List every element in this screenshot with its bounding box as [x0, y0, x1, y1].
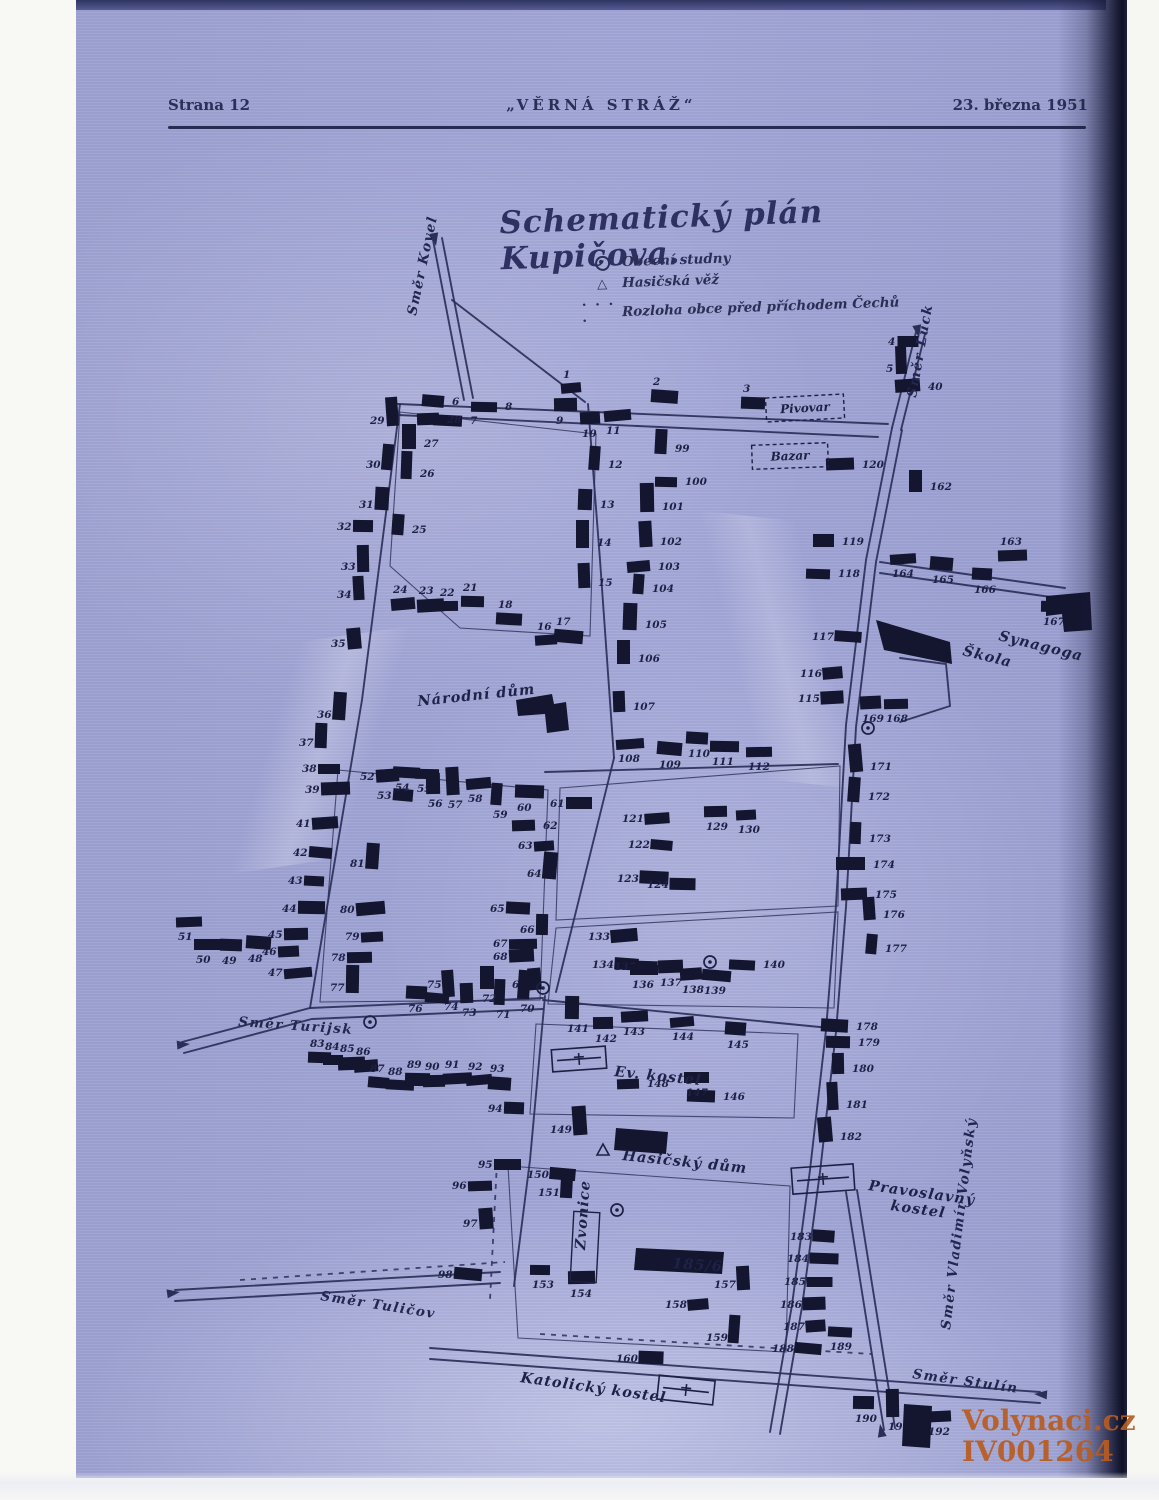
building-number: 149 — [550, 1124, 573, 1136]
scanned-newspaper-page: Strana 12 „VĚRNÁ STRÁŽ“ 23. března 1951 … — [0, 0, 1159, 1500]
block-outline — [556, 766, 840, 920]
building — [346, 627, 362, 649]
building — [828, 1326, 852, 1337]
building — [638, 1351, 663, 1365]
building-number: 43 — [288, 875, 303, 887]
building — [365, 843, 380, 870]
building — [478, 1208, 493, 1230]
building-number: 112 — [748, 761, 770, 773]
building — [865, 934, 878, 955]
building-number: 159 — [706, 1332, 729, 1344]
building — [702, 969, 732, 982]
building-number: 36 — [317, 709, 332, 721]
building-number: 157 — [714, 1279, 737, 1291]
building-number: 1 — [563, 369, 570, 381]
building-number: 115 — [798, 693, 820, 705]
building-number: 75 — [427, 979, 442, 991]
building-number: 38 — [302, 763, 317, 775]
building — [654, 429, 667, 455]
building-number: 163 — [1000, 536, 1022, 548]
building — [426, 773, 440, 794]
building — [686, 731, 709, 744]
building-number: 27 — [423, 438, 439, 450]
watermark-site: Volynaci.cz — [962, 1405, 1136, 1436]
building-number: 22 — [439, 587, 455, 599]
building-number: 104 — [652, 583, 674, 595]
building-number: 29 — [369, 415, 385, 427]
building — [623, 603, 638, 630]
building — [347, 952, 372, 963]
building-number: 187 — [783, 1321, 806, 1333]
building-number: 79 — [345, 931, 360, 943]
named-place-label: Pivovar — [779, 400, 832, 417]
building-number: 108 — [618, 753, 641, 765]
building-number: 181 — [846, 1099, 868, 1111]
building-number: 189 — [830, 1341, 853, 1353]
building-number: 26 — [419, 468, 435, 480]
building — [461, 596, 484, 607]
building — [704, 806, 727, 817]
building-number: 10 — [582, 428, 597, 440]
building — [361, 931, 383, 942]
building-number: 68 — [493, 951, 508, 963]
building-number: 7 — [470, 415, 478, 427]
building-number: 35 — [331, 638, 346, 650]
building-number: 110 — [688, 748, 711, 760]
building-number: 174 — [873, 859, 895, 871]
building — [669, 878, 695, 890]
building-number: 151 — [538, 1187, 560, 1199]
building-number: 70 — [520, 1003, 535, 1015]
building-number: 8 — [505, 401, 513, 413]
building-number: 66 — [520, 924, 535, 936]
building-number: 76 — [408, 1003, 423, 1015]
building — [670, 1016, 695, 1028]
building-number: 150 — [527, 1169, 550, 1181]
building-number: 122 — [628, 839, 650, 851]
building — [284, 967, 313, 979]
building-number: 24 — [392, 584, 408, 596]
building — [578, 489, 593, 510]
building — [909, 470, 922, 492]
building — [385, 397, 399, 427]
building-number: 188 — [772, 1343, 795, 1355]
map-canvas: 1234540678910111213141516171821222324252… — [0, 0, 1159, 1500]
building-number: 136 — [632, 979, 655, 991]
building — [536, 914, 548, 935]
building-number: 190 — [855, 1413, 878, 1425]
building-number: 25 — [411, 524, 427, 536]
building-number: 96 — [452, 1180, 467, 1192]
well-icon-dot — [708, 960, 712, 964]
building — [593, 1017, 613, 1029]
building — [805, 1319, 826, 1332]
building-number: 107 — [633, 701, 656, 713]
building — [312, 816, 339, 830]
building — [454, 1267, 483, 1281]
building-number: 6 — [452, 396, 460, 408]
road — [846, 1192, 884, 1430]
building — [441, 970, 455, 998]
building-number: 89 — [407, 1059, 422, 1071]
building — [820, 690, 844, 704]
building — [741, 397, 765, 410]
building-number: 64 — [527, 868, 542, 880]
building-number: 184 — [787, 1253, 809, 1265]
building — [655, 477, 677, 487]
building-number: 142 — [595, 1033, 617, 1045]
landmark-building — [516, 694, 569, 733]
road-arrow-icon — [876, 1423, 887, 1437]
building-number: 81 — [350, 858, 365, 870]
building — [822, 666, 843, 680]
building-number: 123 — [617, 873, 639, 885]
building-number: 120 — [862, 459, 885, 471]
building-number: 172 — [868, 791, 890, 803]
building — [794, 1342, 822, 1355]
building-number: 124 — [647, 879, 669, 891]
building — [353, 520, 373, 532]
building-number: 77 — [330, 982, 345, 994]
building — [576, 520, 589, 548]
building-number: 158 — [665, 1299, 688, 1311]
building — [391, 597, 416, 611]
building-number: 73 — [462, 1007, 477, 1019]
building — [972, 567, 993, 580]
street-label: Směr Tuličov — [319, 1288, 436, 1322]
scanner-margin-bottom — [0, 1472, 1159, 1500]
building — [687, 1298, 709, 1311]
building-number: 178 — [856, 1021, 879, 1033]
building-number: 139 — [704, 985, 727, 997]
building — [402, 424, 416, 449]
building-number: 9 — [556, 415, 564, 427]
building-number: 146 — [723, 1091, 746, 1103]
building-number: 99 — [675, 443, 690, 455]
building — [506, 901, 531, 914]
building — [806, 569, 830, 580]
watermark-id: IV001264 — [962, 1436, 1136, 1467]
building — [812, 1229, 835, 1243]
building — [512, 820, 535, 832]
building — [504, 1102, 524, 1115]
building — [357, 545, 369, 572]
building — [658, 960, 683, 974]
building-number: 57 — [448, 799, 463, 811]
building-number: 111 — [712, 756, 734, 768]
building — [613, 691, 626, 712]
building — [315, 723, 328, 748]
building-number: 21 — [462, 582, 478, 594]
building — [425, 992, 450, 1004]
building — [736, 809, 756, 820]
building — [530, 1265, 550, 1275]
building — [298, 901, 325, 914]
building — [445, 767, 459, 796]
building-number: 42 — [293, 847, 308, 859]
building — [725, 1021, 747, 1035]
building — [895, 346, 907, 374]
building-number: 101 — [662, 501, 684, 513]
building-number: 44 — [282, 903, 297, 915]
building-number: 72 — [482, 993, 497, 1005]
building-number: 160 — [616, 1353, 639, 1365]
building — [494, 1159, 521, 1170]
building — [847, 777, 861, 803]
building — [553, 629, 583, 644]
building-number: 140 — [763, 959, 786, 971]
building-number: 144 — [672, 1031, 694, 1043]
building — [736, 1266, 750, 1291]
building-number: 50 — [196, 954, 211, 966]
building-number: 71 — [496, 1009, 511, 1021]
building — [632, 574, 644, 595]
building-number: 48 — [248, 953, 263, 965]
building-number: 58 — [468, 793, 483, 805]
building — [422, 394, 445, 408]
building-number: 30 — [366, 459, 381, 471]
building-number: 34 — [337, 589, 352, 601]
building — [480, 966, 494, 989]
building — [471, 402, 497, 412]
building — [644, 812, 670, 825]
building — [321, 781, 350, 795]
building-number: 2 — [652, 376, 660, 388]
building-number: 4 — [888, 336, 895, 348]
building — [220, 939, 242, 952]
building-number: 88 — [388, 1066, 403, 1078]
building — [417, 413, 439, 426]
building — [853, 1396, 874, 1409]
building-number: 192 — [928, 1426, 950, 1438]
building — [884, 699, 908, 709]
church-cross-icon — [662, 1382, 709, 1399]
building — [515, 784, 544, 798]
building-number: 138 — [682, 984, 705, 996]
building-number: 56 — [428, 798, 443, 810]
building-number: 62 — [543, 820, 558, 832]
building-number: 119 — [842, 536, 865, 548]
building — [826, 1036, 850, 1048]
building — [561, 382, 582, 394]
building — [318, 764, 340, 774]
building-number: 168 — [886, 713, 909, 725]
building — [466, 777, 492, 790]
building — [381, 444, 394, 471]
building — [246, 935, 272, 950]
building-number: 59 — [493, 809, 508, 821]
building-number: 94 — [488, 1103, 503, 1115]
building-number: 100 — [685, 476, 708, 488]
building-number: 176 — [883, 909, 906, 921]
named-place-label: Bazar — [769, 448, 811, 463]
building-number: 102 — [660, 536, 682, 548]
landmark-building — [876, 620, 952, 664]
building — [802, 1297, 825, 1311]
building-number: 84 — [325, 1041, 340, 1053]
building-number: 83 — [310, 1038, 325, 1050]
building — [860, 695, 882, 709]
building — [355, 901, 385, 916]
building — [517, 970, 531, 1000]
building-number: 61 — [550, 798, 565, 810]
building — [488, 1076, 512, 1091]
fire-tower-icon — [597, 1144, 609, 1155]
landmark-building — [902, 1404, 932, 1448]
building — [542, 851, 558, 879]
building — [588, 446, 601, 471]
building — [176, 917, 202, 928]
building — [578, 563, 591, 588]
building-number: 154 — [570, 1288, 592, 1300]
building — [332, 692, 347, 721]
building — [848, 743, 863, 772]
building-number: 12 — [608, 459, 623, 471]
building-number: 92 — [468, 1061, 483, 1073]
place-label: Zvonice — [572, 1179, 594, 1251]
building — [617, 640, 630, 664]
building-number: 91 — [445, 1059, 460, 1071]
building — [560, 1175, 573, 1199]
building — [728, 1315, 741, 1344]
building-number: 175 — [875, 889, 897, 901]
building-number: 47 — [268, 967, 283, 979]
building-number: 147 — [686, 1087, 709, 1099]
church-cross-icon — [797, 1171, 850, 1187]
building — [813, 534, 834, 547]
building-number: 90 — [425, 1061, 440, 1073]
building-number: 51 — [178, 931, 193, 943]
building — [406, 985, 428, 999]
building — [309, 846, 333, 859]
building-number: 37 — [299, 737, 314, 749]
building-number: 39 — [305, 784, 320, 796]
building-number: 121 — [622, 813, 644, 825]
street-label: Směr Kovel — [404, 214, 441, 317]
building-number: 18 — [498, 599, 513, 611]
building-number: 49 — [222, 955, 237, 967]
building-number: 5 — [886, 363, 893, 375]
building-number: 31 — [359, 499, 374, 511]
building-number: 177 — [885, 943, 908, 955]
building-number: 173 — [869, 833, 891, 845]
building-number: 166 — [974, 584, 997, 596]
well-icon-dot — [866, 726, 870, 730]
building-number: 23 — [418, 585, 434, 597]
building-number: 52 — [360, 771, 375, 783]
building-number: 86 — [356, 1046, 371, 1058]
building-number: 65 — [490, 903, 505, 915]
building — [621, 1010, 649, 1022]
building-number: 145 — [727, 1039, 749, 1051]
building-number: 118 — [838, 568, 861, 580]
building-number: 11 — [606, 425, 621, 437]
building — [374, 487, 389, 511]
building — [656, 741, 682, 756]
building-number: 15 — [598, 577, 613, 589]
building — [352, 576, 364, 601]
building-number: 180 — [852, 1063, 875, 1075]
building-number: 80 — [340, 904, 355, 916]
building-number: 106 — [638, 653, 661, 665]
building-number: 60 — [517, 802, 532, 814]
building-number: 53 — [377, 790, 392, 802]
building-number: 32 — [337, 521, 352, 533]
building-number: 98 — [438, 1269, 453, 1281]
building-number: 93 — [490, 1063, 505, 1075]
building — [710, 741, 739, 753]
building — [304, 875, 324, 886]
building-number: 40 — [928, 381, 943, 393]
building-number: 13 — [600, 499, 615, 511]
street-label: Směr Stulín — [911, 1366, 1019, 1397]
building — [391, 514, 404, 536]
road — [514, 996, 545, 1286]
building-number: 109 — [659, 759, 682, 771]
building-number: 95 — [478, 1159, 493, 1171]
building — [468, 1181, 492, 1192]
building-number: 87 — [370, 1063, 385, 1075]
building — [680, 967, 703, 981]
building — [998, 549, 1027, 561]
building-number: 14 — [597, 537, 612, 549]
building — [566, 797, 592, 809]
building-number: 162 — [930, 481, 952, 493]
building-number: 130 — [738, 824, 761, 836]
building — [890, 553, 917, 565]
building-number: 16 — [537, 621, 552, 633]
building — [821, 1018, 849, 1032]
building-number: 185 — [784, 1276, 806, 1288]
building-number: 179 — [858, 1037, 881, 1049]
building — [807, 1277, 833, 1287]
building — [509, 939, 537, 949]
building — [929, 556, 953, 571]
building — [534, 840, 555, 851]
building-number: 153 — [532, 1279, 554, 1291]
building — [627, 560, 651, 573]
building — [604, 409, 632, 422]
well-icon-dot — [368, 1020, 372, 1024]
place-label: 185/6 — [672, 1255, 724, 1275]
building-number: 116 — [800, 668, 823, 680]
road — [556, 758, 614, 992]
building — [638, 521, 652, 548]
building — [834, 630, 862, 643]
building — [640, 483, 655, 512]
building-number: 143 — [623, 1026, 645, 1038]
building — [817, 1116, 833, 1142]
building — [862, 897, 876, 921]
building-number: 3 — [743, 383, 750, 395]
building-number: 41 — [296, 818, 311, 830]
building-number: 67 — [493, 938, 508, 950]
building — [346, 965, 359, 993]
building — [651, 389, 679, 404]
building — [746, 747, 772, 757]
building — [832, 1053, 844, 1074]
building — [836, 857, 865, 870]
building-number: 117 — [812, 631, 835, 643]
building-number: 78 — [331, 952, 346, 964]
building — [194, 939, 223, 950]
building-number: 141 — [567, 1023, 589, 1035]
building-number: 54 — [395, 782, 410, 794]
building — [826, 1082, 838, 1111]
scanner-margin-left — [0, 0, 76, 1500]
building-number: 182 — [840, 1131, 862, 1143]
place-label: Hasičský dům — [621, 1147, 748, 1177]
